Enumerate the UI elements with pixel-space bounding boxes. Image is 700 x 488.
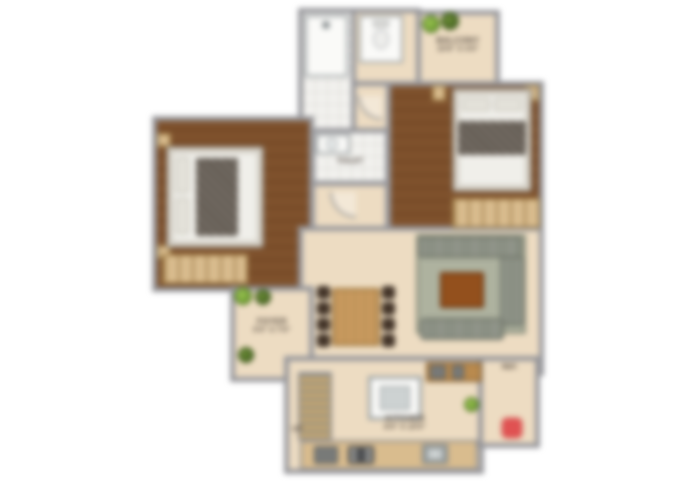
stove-icon	[314, 446, 338, 464]
coffee-table	[440, 272, 484, 308]
blanket-icon	[458, 121, 526, 155]
plant-icon	[234, 287, 252, 305]
wardrobe	[162, 254, 248, 284]
island-sink-icon	[380, 386, 410, 410]
foyer-label: FOYER 5'0" X 7'0"	[234, 317, 310, 336]
plant-icon	[441, 12, 459, 30]
kitchen-label-name: KITCHEN	[360, 414, 450, 424]
pillow-icon	[494, 98, 522, 111]
basin-bowl-icon	[326, 138, 338, 150]
plant-icon	[255, 289, 271, 305]
kitchen-label: KITCHEN 8'0" X 10'0"	[360, 414, 450, 433]
cooktop-icon	[430, 365, 446, 379]
kitchen-label-dims: 8'0" X 10'0"	[360, 424, 450, 433]
stairs-label: UP	[280, 426, 314, 435]
sofa-sectional	[420, 318, 504, 340]
shower-drain-icon	[322, 21, 330, 29]
dining-chair	[317, 302, 330, 315]
floor-plan-blur-layer: BALCONY 10'6" X 4'0" TOILET FOYER 5'0" X…	[0, 0, 700, 488]
dining-chair	[317, 318, 330, 331]
pillow-icon	[176, 157, 189, 193]
wardrobe	[452, 198, 540, 228]
dining-chair	[382, 318, 395, 331]
pillow-icon	[176, 198, 189, 234]
dining-table	[332, 288, 380, 346]
stairs-label-text: UP	[280, 426, 314, 435]
plant-icon	[464, 397, 479, 412]
toilet-label-name: TOILET	[310, 158, 390, 167]
floor-plan-canvas: BALCONY 10'6" X 4'0" TOILET FOYER 5'0" X…	[0, 0, 700, 488]
gas-hob-icon	[348, 446, 374, 464]
utility-label-text: REF.	[486, 364, 534, 373]
balcony-label: BALCONY 10'6" X 4'0"	[416, 36, 500, 55]
appliance-icon	[452, 365, 464, 379]
plant-icon	[422, 15, 440, 33]
dining-chair	[317, 286, 330, 299]
dining-chair	[317, 334, 330, 347]
dining-chair	[382, 334, 395, 347]
toilet-bowl-icon	[373, 29, 389, 49]
foyer-label-dims: 5'0" X 7'0"	[234, 327, 310, 336]
brand-logo-icon	[502, 418, 522, 438]
pillow-icon	[462, 98, 490, 111]
utility-label: REF.	[486, 364, 534, 373]
sofa-sectional	[500, 256, 524, 326]
nightstand	[157, 133, 171, 147]
toilet-label: TOILET	[310, 158, 390, 167]
balcony-label-name: BALCONY	[416, 36, 500, 46]
foyer-label-name: FOYER	[234, 317, 310, 327]
sink-basin-icon	[427, 448, 443, 460]
toilet-tank-icon	[373, 20, 389, 27]
sofa-sectional	[418, 236, 522, 258]
blanket-icon	[196, 158, 238, 236]
dining-chair	[382, 302, 395, 315]
nightstand	[432, 85, 446, 101]
dining-chair	[382, 286, 395, 299]
plant-icon	[238, 347, 254, 363]
balcony-label-dims: 10'6" X 4'0"	[416, 46, 500, 55]
